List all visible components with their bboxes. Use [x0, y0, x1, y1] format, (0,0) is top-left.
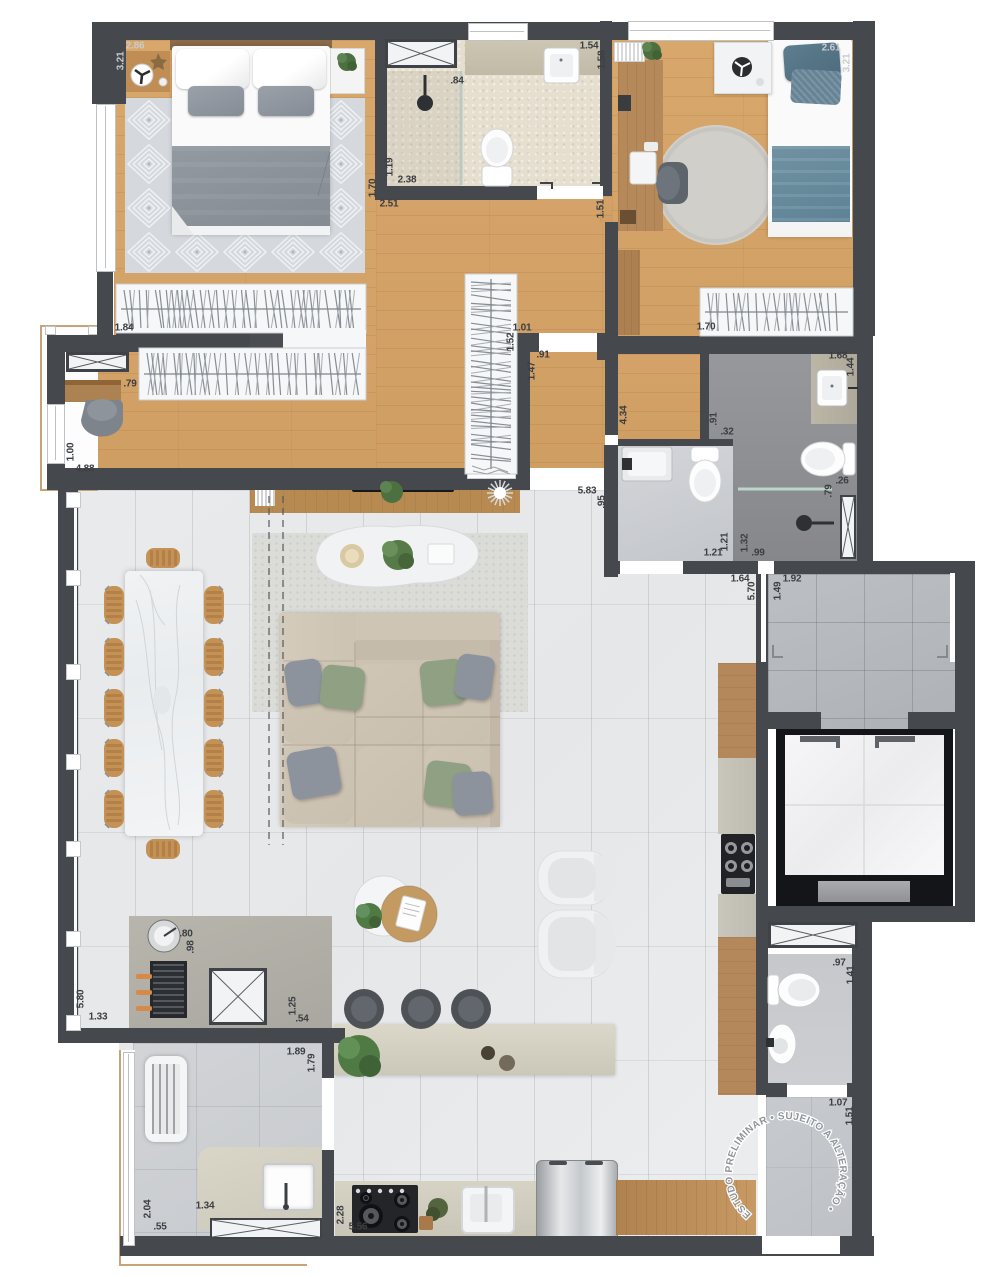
svg-text:ESTUDO PRELIMINAR • SUJEITO A: ESTUDO PRELIMINAR • SUJEITO A ALTERAÇÃO … [724, 1111, 848, 1220]
